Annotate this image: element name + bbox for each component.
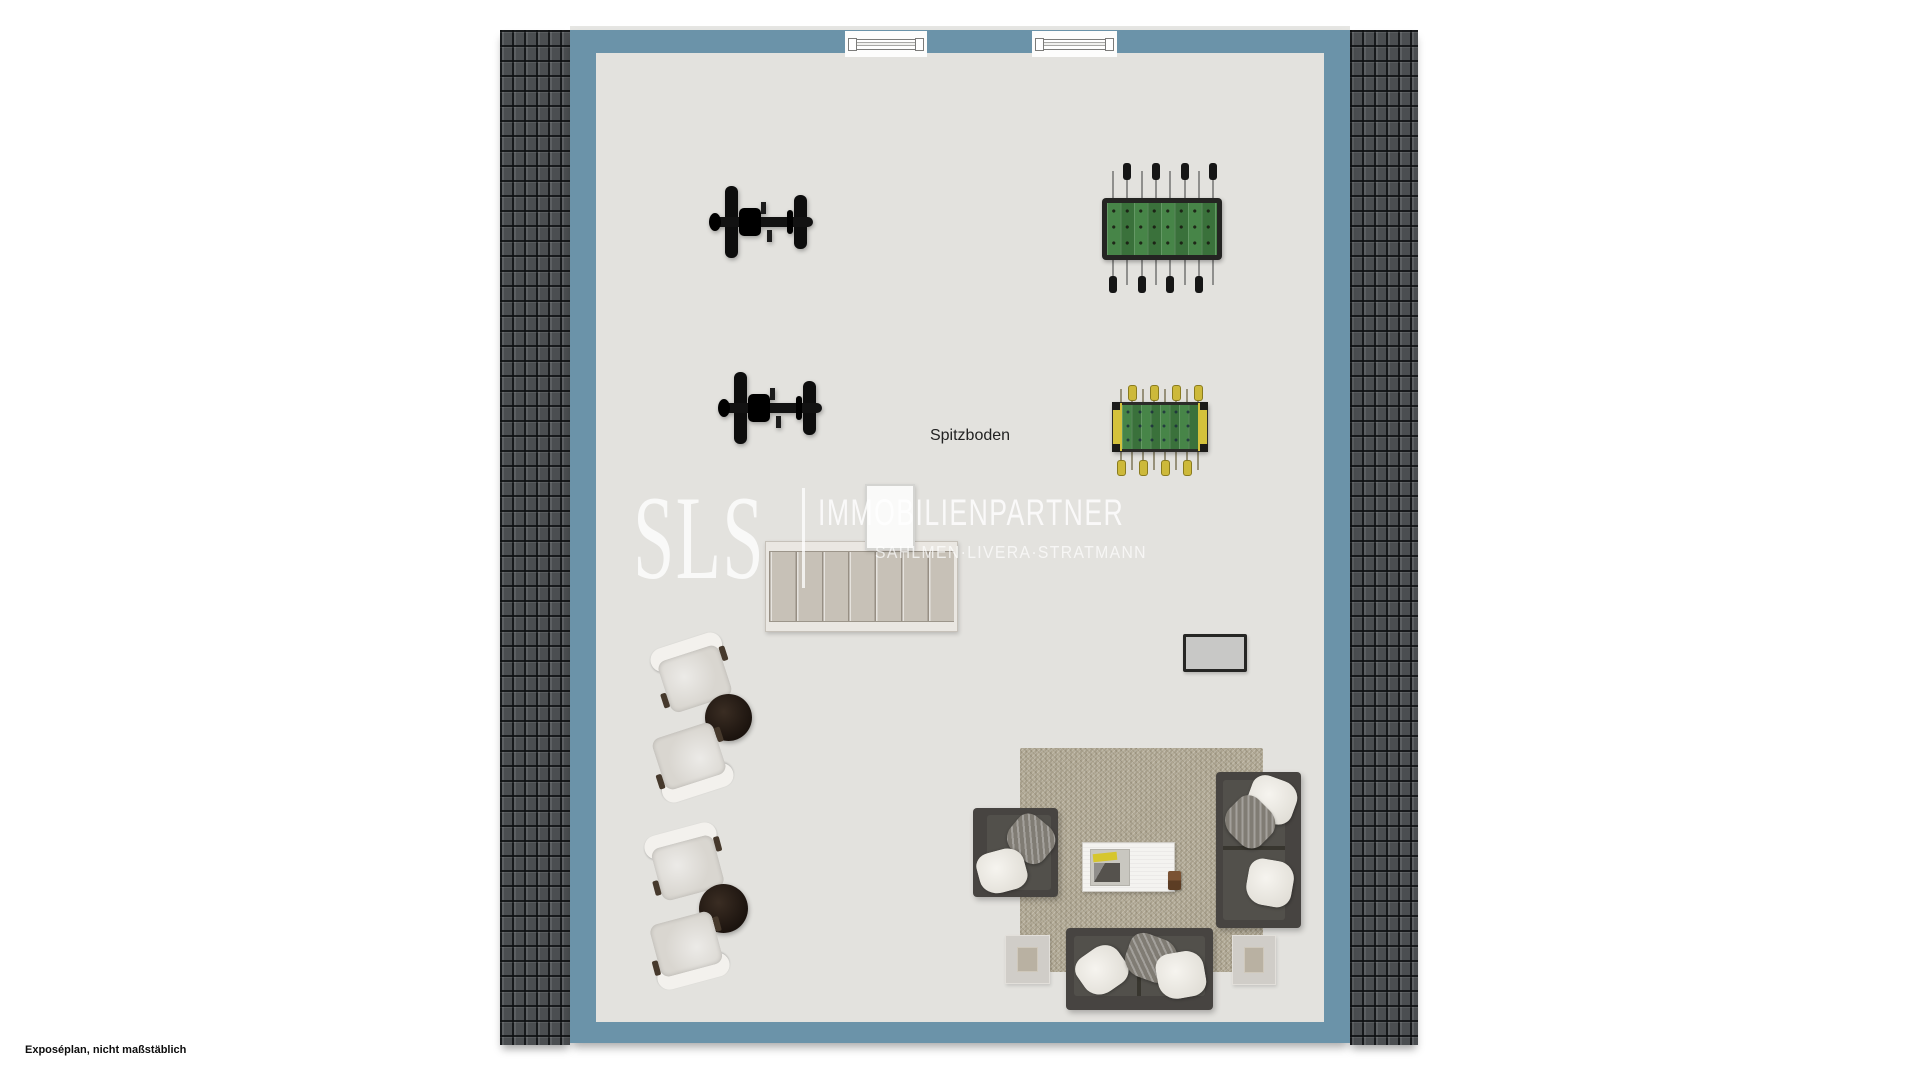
foosball-handle [1123, 163, 1131, 180]
bike-handlebar [718, 399, 730, 417]
foosball-handle [1128, 385, 1137, 401]
foosball-cabinet [1102, 198, 1222, 260]
foosball-table-black [1098, 163, 1228, 293]
foosball-corner [1112, 402, 1120, 410]
foosball-handle [1183, 460, 1192, 476]
foosball-handle [1139, 460, 1148, 476]
roof-tiles-right [1350, 30, 1418, 1045]
foosball-handle [1166, 276, 1174, 293]
magazine [1090, 849, 1130, 886]
foosball-handle [1209, 163, 1217, 180]
roof-tiles-left [500, 30, 570, 1045]
bike-frame [711, 217, 813, 227]
bike-post [787, 210, 793, 234]
foosball-corner [1200, 444, 1208, 452]
skylight-window [845, 31, 927, 57]
foosball-handle [1117, 460, 1126, 476]
exercise-bike [709, 186, 815, 258]
square-side-table [1232, 935, 1276, 985]
side-table-top [1017, 947, 1038, 972]
foosball-handle [1181, 163, 1189, 180]
footer-note: Exposéplan, nicht maßstäblich [25, 1044, 186, 1056]
window-frame-end [848, 38, 857, 51]
foosball-handle [1138, 276, 1146, 293]
bike-pedal [761, 202, 766, 214]
book [1168, 871, 1181, 890]
bike-post [796, 396, 802, 420]
bike-pedal [776, 416, 781, 428]
bike-pedal [770, 388, 775, 400]
exercise-bike [718, 372, 824, 444]
foosball-handle [1152, 163, 1160, 180]
chimney-shaft [865, 484, 915, 550]
staircase [765, 541, 958, 632]
foosball-table-yellow [1108, 385, 1212, 474]
floorplan-canvas: SLS IMMOBILIENPARTNER SAHLMEN·LIVERA·STR… [0, 0, 1920, 1080]
magazine-photo [1094, 863, 1120, 882]
tv-screen [1183, 634, 1247, 672]
foosball-handle [1195, 276, 1203, 293]
bike-handlebar [709, 213, 721, 231]
skylight-window [1032, 31, 1117, 57]
window-frame-end [915, 38, 924, 51]
bike-pedal [767, 230, 772, 242]
bike-seat [739, 208, 761, 236]
square-side-table [1005, 935, 1050, 984]
window-frame-end [1035, 38, 1044, 51]
window-frame [854, 39, 918, 50]
foosball-handle [1150, 385, 1159, 401]
side-table-top [1244, 947, 1264, 973]
magazine-headline [1093, 852, 1118, 862]
foosball-cabinet [1112, 402, 1208, 452]
coffee-table [1082, 842, 1175, 892]
foosball-field [1107, 203, 1217, 255]
stair-treads [769, 551, 954, 622]
foosball-corner [1200, 402, 1208, 410]
window-frame-end [1105, 38, 1114, 51]
foosball-corner [1112, 444, 1120, 452]
bike-frame [720, 403, 822, 413]
room-label: Spitzboden [900, 427, 1040, 445]
foosball-handle [1194, 385, 1203, 401]
bike-seat [748, 394, 770, 422]
foosball-handle [1109, 276, 1117, 293]
window-frame [1041, 39, 1108, 50]
foosball-handle [1172, 385, 1181, 401]
foosball-handle [1161, 460, 1170, 476]
foosball-field [1122, 405, 1198, 449]
